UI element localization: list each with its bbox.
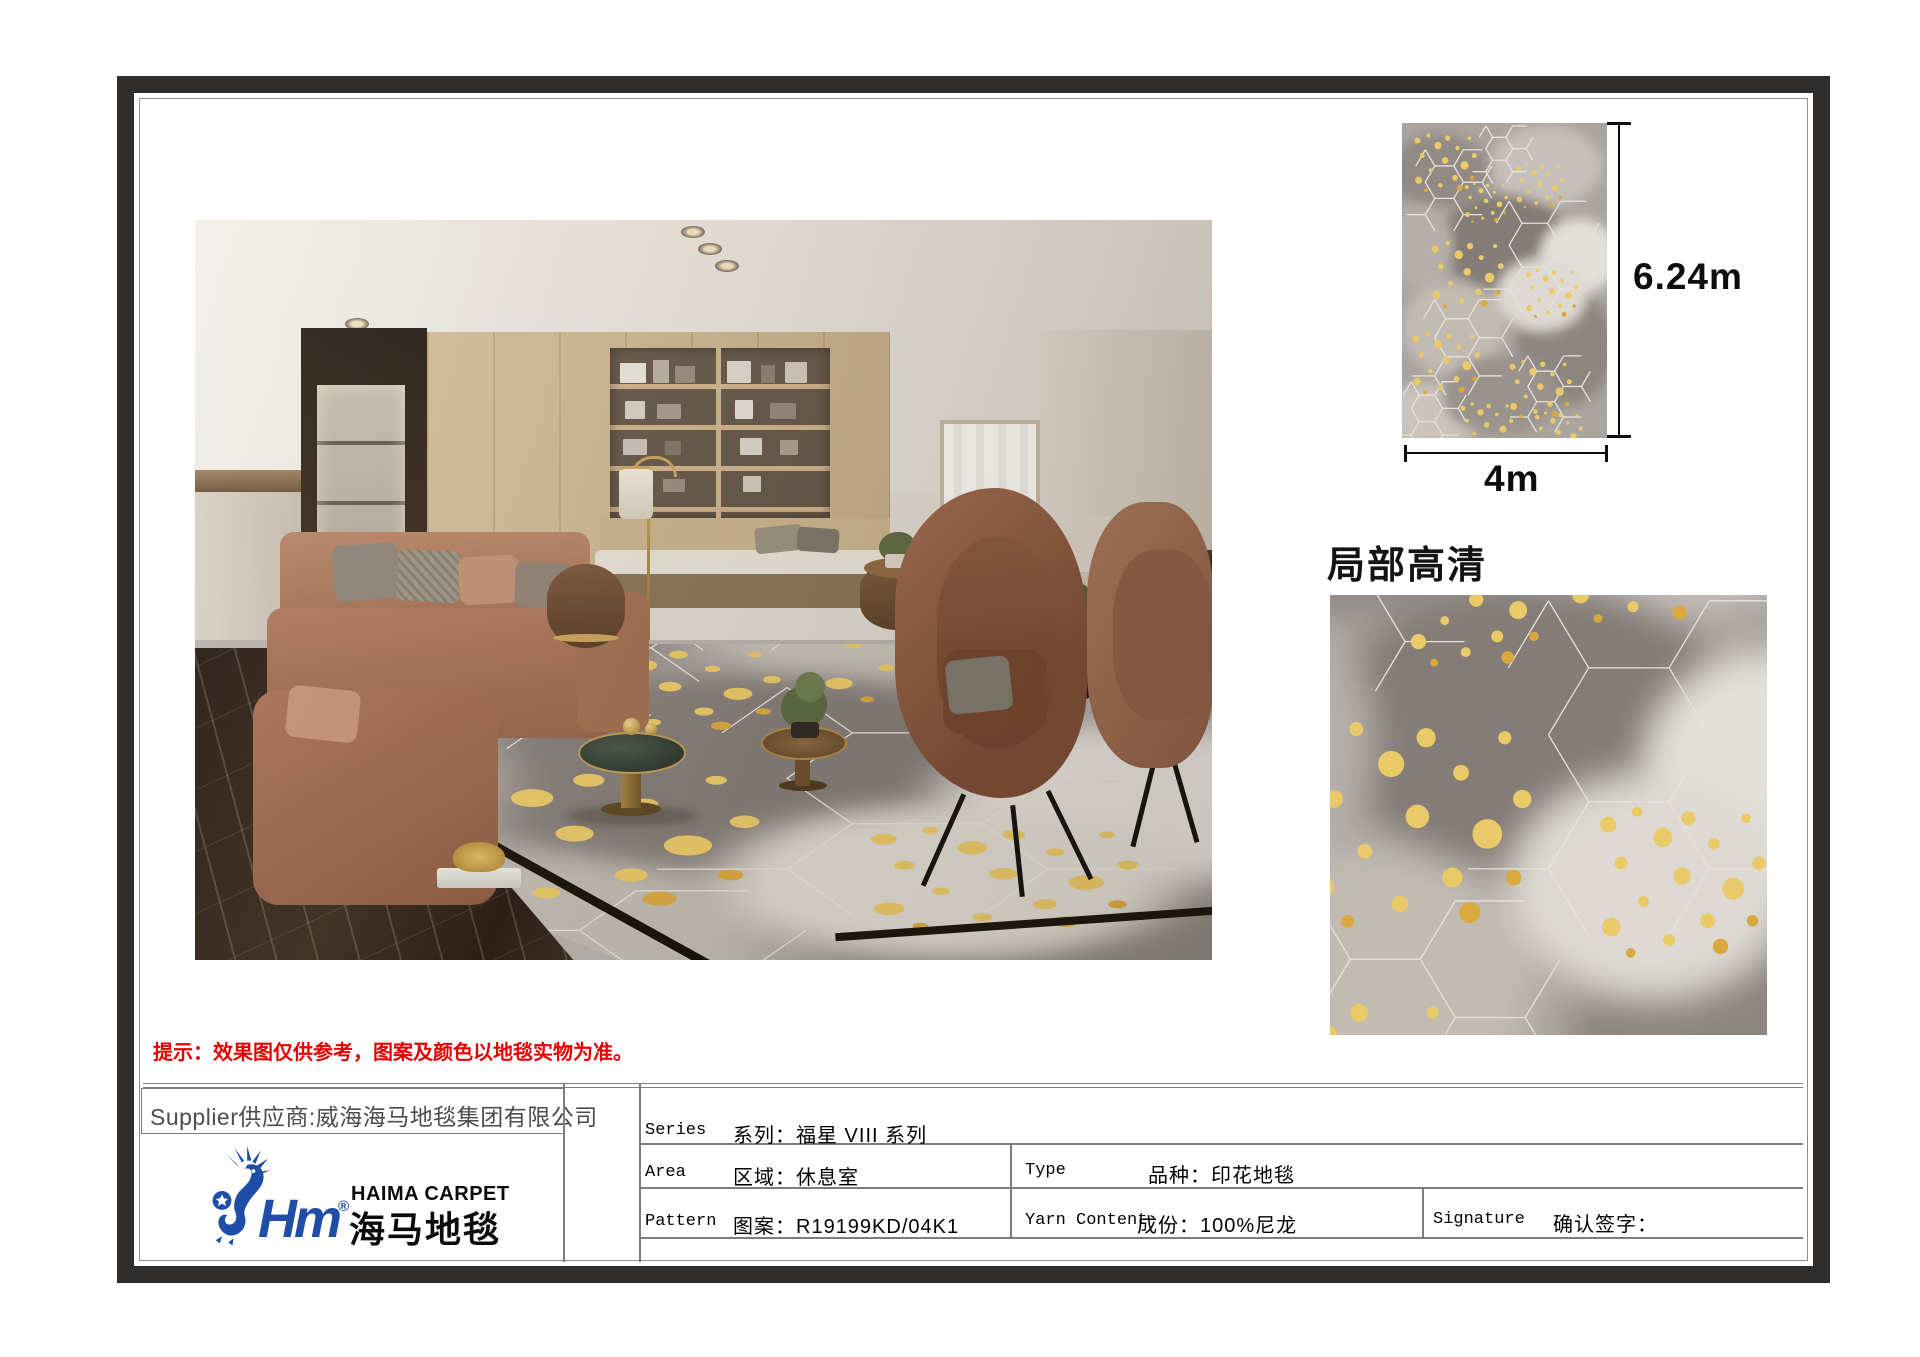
ceiling-spotlight [698, 243, 722, 255]
dimension-cap [1605, 445, 1608, 462]
width-dimension-line [1405, 452, 1607, 454]
registered-mark-icon: ® [338, 1198, 349, 1215]
shelf-object [657, 404, 681, 419]
wing-chair-right-shell [1113, 550, 1212, 720]
sofa-pillow [331, 542, 401, 602]
shelf-object [770, 403, 796, 419]
table-vline [1422, 1187, 1424, 1239]
signature-value: 确认签字： [1553, 1208, 1658, 1237]
ceiling-spotlight [715, 260, 739, 272]
gold-decor-ball [645, 723, 657, 735]
series-label: Series [645, 1121, 706, 1140]
pattern-value: 图案：R19199KD/04K1 [733, 1210, 959, 1239]
shelf-object [625, 401, 645, 419]
shelf-object [665, 441, 681, 455]
area-value: 区域：休息室 [733, 1161, 859, 1190]
carpet-swatch [1402, 123, 1607, 438]
dimension-cap [1404, 445, 1407, 462]
wing-chair-pillow [944, 655, 1013, 715]
coffee-table-pedestal [621, 768, 641, 808]
shelf-object [735, 400, 753, 419]
shelf-object [663, 479, 685, 492]
height-dimension-line [1618, 123, 1620, 437]
yarn-content-label: Yarn Content [1025, 1211, 1147, 1230]
dimension-cap [1607, 435, 1631, 438]
table-vline [639, 1084, 641, 1262]
plant-pot [791, 722, 819, 738]
room-photo [195, 220, 1212, 960]
notice-text: 提示：效果图仅供参考，图案及颜色以地毯实物为准。 [153, 1036, 633, 1065]
table-vline [563, 1084, 565, 1262]
shelf-object [620, 363, 646, 383]
yarn-content-value: 成份：100%尼龙 [1137, 1209, 1297, 1238]
detail-title: 局部高清 [1327, 534, 1487, 589]
gold-sculpture [453, 842, 505, 872]
logo-name-zh: 海马地毯 [349, 1201, 501, 1253]
shelf-object [761, 365, 775, 383]
sofa-pillow [284, 684, 361, 743]
sofa-pillow [458, 554, 520, 605]
shelf-object [653, 360, 669, 383]
plant [795, 672, 825, 702]
pattern-label: Pattern [645, 1212, 716, 1231]
bench-seat [595, 550, 895, 576]
area-label: Area [645, 1163, 686, 1182]
gold-decor-ball [623, 718, 640, 735]
shelf-object [675, 366, 695, 383]
spec-sheet: 6.24m 4m 局部高清 提示：效果图仅供参考，图案及颜色以地毯实物为准。 S… [0, 0, 1920, 1357]
signature-label: Signature [1433, 1210, 1525, 1229]
bench-pillow [796, 527, 840, 554]
shelf-object [743, 476, 761, 492]
table-vline [1010, 1143, 1012, 1239]
sofa-pillow [396, 548, 463, 603]
series-value: 系列：福星 VIII 系列 [733, 1119, 927, 1148]
bookshelf-divider [716, 348, 721, 518]
dimension-cap [1607, 122, 1631, 125]
coffee-table-top [578, 732, 686, 774]
ceiling-spotlight [681, 226, 705, 238]
shelf-object [780, 440, 798, 455]
width-dimension-label: 4m [1484, 458, 1539, 500]
logo-monogram: Hm [258, 1188, 339, 1250]
shelf-object [740, 438, 762, 455]
type-label: Type [1025, 1161, 1066, 1180]
supplier-text: Supplier供应商:威海海马地毯集团有限公司 [150, 1098, 598, 1132]
floor-lamp-shade [619, 466, 653, 519]
shelf-object [727, 361, 751, 383]
carpet-closeup-image [1330, 595, 1767, 1035]
pouf-gold-band [553, 634, 619, 642]
height-dimension-label: 6.24m [1633, 256, 1743, 298]
type-value: 品种：印花地毯 [1148, 1159, 1295, 1188]
shelf-object [623, 439, 647, 455]
shelf-object [785, 362, 807, 383]
